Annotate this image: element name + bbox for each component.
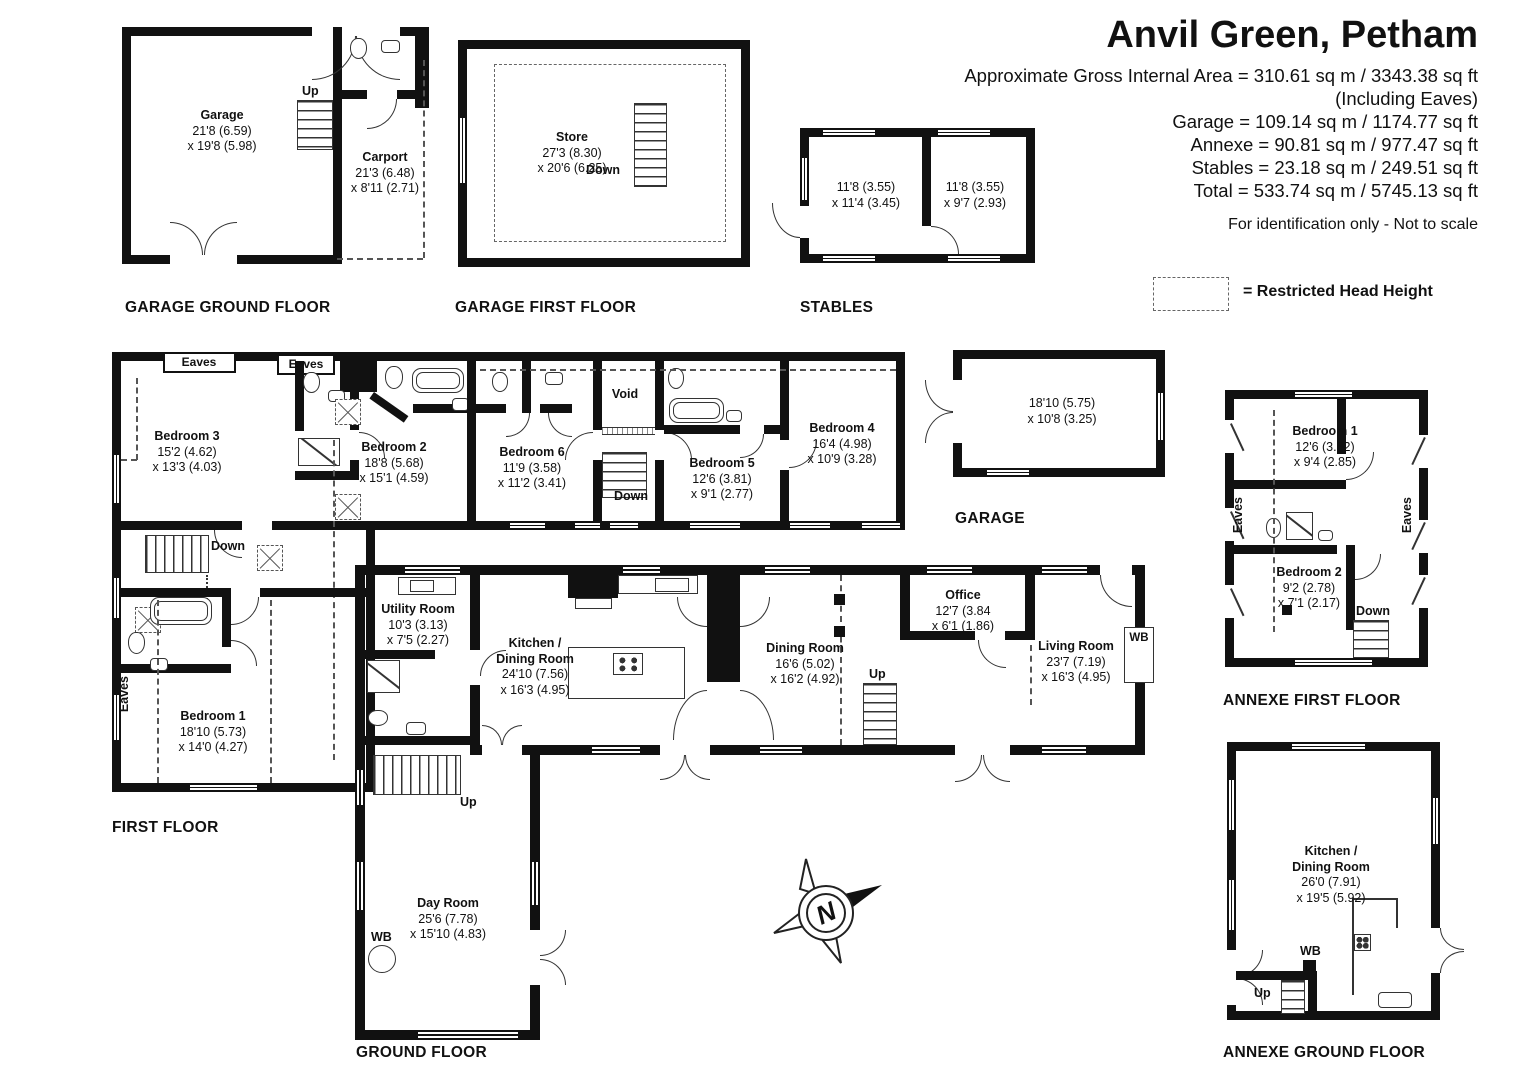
eaves-dashed-line xyxy=(337,258,423,260)
sink-icon xyxy=(381,40,400,53)
sink-icon xyxy=(545,372,563,385)
wall xyxy=(1431,973,1440,1020)
door-leaf-line xyxy=(1396,898,1398,928)
wall xyxy=(397,90,420,99)
window xyxy=(418,1030,518,1040)
disclaimer: For identification only - Not to scale xyxy=(964,216,1478,234)
shower-icon xyxy=(367,660,400,693)
room-label-bedroom2: Bedroom 218'8 (5.68)x 15'1 (4.59) xyxy=(359,440,428,487)
floor-label-annexe-ground: ANNEXE GROUND FLOOR xyxy=(1223,1044,1425,1062)
door-arc xyxy=(170,222,203,255)
floor-label-garage-ground: GARAGE GROUND FLOOR xyxy=(125,299,330,317)
wall xyxy=(593,361,602,430)
door-arc xyxy=(685,755,710,780)
wall xyxy=(953,468,1165,477)
door-arc xyxy=(502,725,522,745)
wall xyxy=(780,361,789,440)
window xyxy=(927,565,972,575)
title-block: Anvil Green, Petham Approximate Gross In… xyxy=(964,16,1478,234)
window xyxy=(823,254,875,263)
sink-icon xyxy=(150,658,168,671)
wall xyxy=(953,443,962,477)
floorplan-canvas: Anvil Green, Petham Approximate Gross In… xyxy=(0,0,1526,1080)
wall xyxy=(741,40,750,267)
door-arc xyxy=(1355,554,1381,580)
door-arc xyxy=(1100,575,1132,607)
wall xyxy=(896,352,905,530)
wood-burner-label: WB xyxy=(1300,944,1321,958)
door-leaf-line xyxy=(1230,588,1244,616)
window xyxy=(1292,742,1365,751)
window xyxy=(862,521,900,530)
window xyxy=(690,521,740,530)
window xyxy=(1227,780,1236,830)
door-arc xyxy=(231,597,259,625)
room-label-bedroom6: Bedroom 611'9 (3.58)x 11'2 (3.41) xyxy=(498,445,566,492)
room-label-garage: Garage21'8 (6.59)x 19'8 (5.98) xyxy=(187,108,256,155)
wall xyxy=(260,588,366,597)
door-opening xyxy=(1100,565,1132,575)
door-arc xyxy=(931,226,959,254)
eaves-label: Eaves xyxy=(1231,497,1245,533)
wall xyxy=(340,352,377,392)
wall xyxy=(1236,971,1316,980)
room-label-day-room: Day Room25'6 (7.78)x 15'10 (4.83) xyxy=(410,896,486,943)
wall-block xyxy=(834,626,845,637)
wall xyxy=(710,745,955,755)
wall xyxy=(780,470,789,521)
window xyxy=(575,521,600,530)
window xyxy=(190,783,257,792)
floor-label-garage-first: GARAGE FIRST FLOOR xyxy=(455,299,636,317)
wall xyxy=(470,685,480,745)
window xyxy=(823,128,875,137)
wall xyxy=(476,404,506,413)
door-arc xyxy=(677,597,707,627)
window xyxy=(948,254,1000,263)
door-arc xyxy=(660,755,685,780)
toilet-icon xyxy=(492,372,508,392)
hob-icon xyxy=(1354,934,1371,951)
void-label: Void xyxy=(612,387,638,401)
eaves-dashed-line xyxy=(136,378,138,460)
wall xyxy=(121,588,231,597)
north-compass-icon: N xyxy=(770,854,888,968)
bathtub-icon xyxy=(150,597,212,625)
restricted-head-height-area xyxy=(494,64,726,242)
wall xyxy=(800,238,809,263)
toilet-icon xyxy=(368,710,388,726)
room-label-kitchen-main: Kitchen /Dining Room 24'10 (7.56)x 16'3 … xyxy=(496,636,574,698)
stairs-up-label: Up xyxy=(460,795,477,809)
wall xyxy=(122,27,131,264)
wall xyxy=(522,745,540,755)
toilet-icon xyxy=(668,368,684,389)
restricted-head-height-area xyxy=(1153,277,1229,311)
wood-burner-icon xyxy=(368,945,396,973)
eaves-label: Eaves xyxy=(1400,497,1414,533)
wall xyxy=(1225,618,1234,667)
wall xyxy=(764,425,780,434)
wall xyxy=(470,745,482,755)
eaves-dashed-line xyxy=(157,600,159,783)
wall-block xyxy=(834,594,845,605)
wall xyxy=(1227,1011,1440,1020)
wall xyxy=(953,350,1165,359)
door-arc xyxy=(772,203,800,238)
window xyxy=(987,468,1029,477)
eaves-dashed-line xyxy=(1273,410,1275,632)
shower-icon xyxy=(1286,512,1313,540)
wall xyxy=(655,460,664,521)
window xyxy=(1227,880,1236,930)
wall xyxy=(112,521,242,530)
toilet-icon xyxy=(385,366,403,389)
staircase xyxy=(1281,980,1305,1014)
floor-label-stables: STABLES xyxy=(800,299,873,317)
window xyxy=(458,118,467,183)
window xyxy=(112,455,121,503)
page-title: Anvil Green, Petham xyxy=(964,16,1478,56)
wall xyxy=(237,255,342,264)
toilet-icon xyxy=(350,38,367,59)
garage-area-line: Garage = 109.14 sq m / 1174.77 sq ft xyxy=(964,110,1478,133)
wall xyxy=(1234,545,1337,554)
wall xyxy=(664,425,740,434)
bathtub-icon xyxy=(669,398,724,423)
window xyxy=(800,158,809,200)
window xyxy=(592,745,640,755)
wall xyxy=(1227,1005,1236,1020)
floor-label-annexe-first: ANNEXE FIRST FLOOR xyxy=(1223,692,1401,710)
door-arc xyxy=(740,597,770,627)
door-arc xyxy=(983,755,1010,782)
window xyxy=(112,578,121,618)
wall xyxy=(1025,575,1035,640)
door-arc xyxy=(740,690,774,740)
window xyxy=(623,565,660,575)
window xyxy=(1156,393,1165,440)
bathtub-icon xyxy=(412,368,464,393)
room-label-annexe-bedroom2: Bedroom 29'2 (2.78)x 7'1 (2.17) xyxy=(1276,565,1341,612)
eaves-dashed-line xyxy=(121,459,137,461)
wall xyxy=(922,137,931,226)
door-arc xyxy=(482,725,502,745)
window xyxy=(760,745,802,755)
door-leaf-line xyxy=(1230,423,1244,451)
room-label-bedroom4: Bedroom 416'4 (4.98)x 10'9 (3.28) xyxy=(807,421,876,468)
wall xyxy=(593,460,602,521)
wall xyxy=(295,471,359,480)
sink-icon xyxy=(1318,530,1333,541)
eaves-label: Eaves xyxy=(182,355,217,369)
eaves-label: Eaves xyxy=(289,357,324,371)
stables-area-line: Stables = 23.18 sq m / 249.51 sq ft xyxy=(964,156,1478,179)
wall xyxy=(1225,390,1234,420)
toilet-icon xyxy=(128,632,145,654)
eaves-dashed-line xyxy=(333,440,335,760)
wall xyxy=(1419,553,1428,575)
window xyxy=(610,521,638,530)
wall xyxy=(1346,545,1355,630)
staircase xyxy=(634,103,667,187)
room-label-bedroom5: Bedroom 512'6 (3.81)x 9'1 (2.77) xyxy=(689,456,754,503)
wall xyxy=(355,565,1145,575)
sink-icon xyxy=(726,410,742,422)
eaves-dashed-line xyxy=(423,60,425,258)
window xyxy=(355,862,365,910)
door-arc xyxy=(955,755,982,782)
toilet-icon xyxy=(303,372,320,393)
window xyxy=(1295,658,1372,667)
floor-label-ground: GROUND FLOOR xyxy=(356,1044,487,1062)
window xyxy=(355,770,365,805)
wall xyxy=(1308,971,1317,1011)
wall xyxy=(121,664,231,673)
wall xyxy=(707,572,740,682)
door-arc xyxy=(540,959,566,985)
wall xyxy=(365,650,435,659)
room-label-office: Office12'7 (3.84x 6'1 (1.86) xyxy=(932,588,994,635)
wall xyxy=(568,575,618,598)
window xyxy=(405,565,460,575)
room-label-dining: Dining Room16'6 (5.02)x 16'2 (4.92) xyxy=(766,641,844,688)
room-label-carport: Carport21'3 (6.48)x 8'11 (2.71) xyxy=(351,150,419,197)
gross-area-line: Approximate Gross Internal Area = 310.61… xyxy=(964,64,1478,87)
wall xyxy=(1419,468,1428,520)
wall xyxy=(333,90,367,99)
hob-icon xyxy=(613,653,643,675)
door-arc xyxy=(312,36,356,80)
window xyxy=(510,521,545,530)
room-label-annexe-bedroom1: Bedroom 112'6 (3.82)x 9'4 (2.85) xyxy=(1292,424,1357,471)
window xyxy=(1431,798,1440,844)
counter xyxy=(655,578,689,592)
room-label-stable-left: 11'8 (3.55)x 11'4 (3.45) xyxy=(832,180,900,211)
wall xyxy=(953,350,962,380)
wall xyxy=(470,575,480,650)
sink-icon xyxy=(406,722,426,735)
counter xyxy=(575,598,612,609)
wall xyxy=(458,40,750,49)
wall xyxy=(222,597,231,647)
including-eaves-line: (Including Eaves) xyxy=(964,87,1478,110)
counter xyxy=(410,580,434,592)
window xyxy=(765,565,810,575)
wall xyxy=(1419,390,1428,435)
wall xyxy=(458,258,750,267)
room-label-bedroom3: Bedroom 315'2 (4.62)x 13'3 (4.03) xyxy=(152,429,221,476)
wall xyxy=(122,27,312,36)
door-arc xyxy=(740,434,764,458)
window xyxy=(1295,390,1352,399)
wall xyxy=(333,99,342,264)
eaves-dashed-line xyxy=(1030,645,1032,705)
door-arc xyxy=(506,413,530,437)
door-leaf-line xyxy=(1411,577,1425,605)
room-label-living: Living Room23'7 (7.19)x 16'3 (4.95) xyxy=(1038,639,1114,686)
stairs-up-label: Up xyxy=(1254,986,1271,1000)
wall xyxy=(295,361,304,431)
stairs-down-label: Down xyxy=(211,539,245,553)
door-arc xyxy=(1440,928,1464,950)
room-label-annexe-kitchen: Kitchen /Dining Room 26'0 (7.91)x 19'5 (… xyxy=(1292,844,1370,906)
wall xyxy=(365,736,470,745)
total-area-line: Total = 533.74 sq m / 5745.13 sq ft xyxy=(964,179,1478,202)
legend-restricted-head-height: = Restricted Head Height xyxy=(1243,283,1433,301)
wall xyxy=(1225,541,1234,585)
skylight-icon xyxy=(335,494,361,520)
wood-burner-label: WB xyxy=(1129,632,1148,644)
staircase xyxy=(297,100,333,150)
wall xyxy=(655,361,664,430)
eaves-label: Eaves xyxy=(117,676,131,712)
staircase xyxy=(1353,620,1389,658)
staircase xyxy=(145,535,209,573)
room-label-bedroom1-first: Bedroom 118'10 (5.73)x 14'0 (4.27) xyxy=(178,709,247,756)
wall xyxy=(1419,608,1428,667)
window xyxy=(530,862,540,905)
wall xyxy=(1234,480,1346,489)
window xyxy=(1042,565,1087,575)
skylight-icon xyxy=(335,399,361,425)
door-arc xyxy=(367,99,397,129)
door-arc xyxy=(978,640,1006,668)
stairs-down-label: Down xyxy=(1356,604,1390,618)
room-label-garage-out: 18'10 (5.75)x 10'8 (3.25) xyxy=(1027,396,1096,427)
wall xyxy=(369,392,408,423)
door-leaf-line xyxy=(1411,437,1425,465)
window xyxy=(790,521,830,530)
wall xyxy=(467,361,476,521)
door-arc xyxy=(548,413,572,437)
door-arc xyxy=(925,412,953,443)
floor-label-garage-out: GARAGE xyxy=(955,510,1025,528)
skylight-icon xyxy=(257,545,283,571)
door-arc xyxy=(204,222,237,255)
door-arc xyxy=(664,432,692,460)
stairs-up-label: Up xyxy=(302,84,319,98)
annexe-area-line: Annexe = 90.81 sq m / 977.47 sq ft xyxy=(964,133,1478,156)
wood-burner-label: WB xyxy=(371,930,392,944)
staircase xyxy=(373,755,461,795)
eaves-dashed-line xyxy=(480,369,896,371)
floor-label-first: FIRST FLOOR xyxy=(112,819,219,837)
wall xyxy=(900,575,910,635)
stairs-up-label: Up xyxy=(869,667,886,681)
stairs-down-label: Down xyxy=(614,489,648,503)
wall xyxy=(540,404,572,413)
door-arc xyxy=(925,380,953,412)
sink-icon xyxy=(1378,992,1412,1008)
door-arc xyxy=(231,640,257,666)
landing-edge xyxy=(602,427,655,435)
wall-block xyxy=(1303,960,1316,971)
door-arc xyxy=(1440,951,1464,973)
window xyxy=(1042,745,1086,755)
door-arc xyxy=(540,930,566,956)
eaves-dashed-line xyxy=(270,600,272,783)
stairs-down-label: Down xyxy=(586,163,620,177)
wall xyxy=(122,255,170,264)
room-label-utility: Utility Room10'3 (3.13)x 7'5 (2.27) xyxy=(381,602,455,649)
wall xyxy=(272,521,375,530)
staircase xyxy=(863,683,897,745)
